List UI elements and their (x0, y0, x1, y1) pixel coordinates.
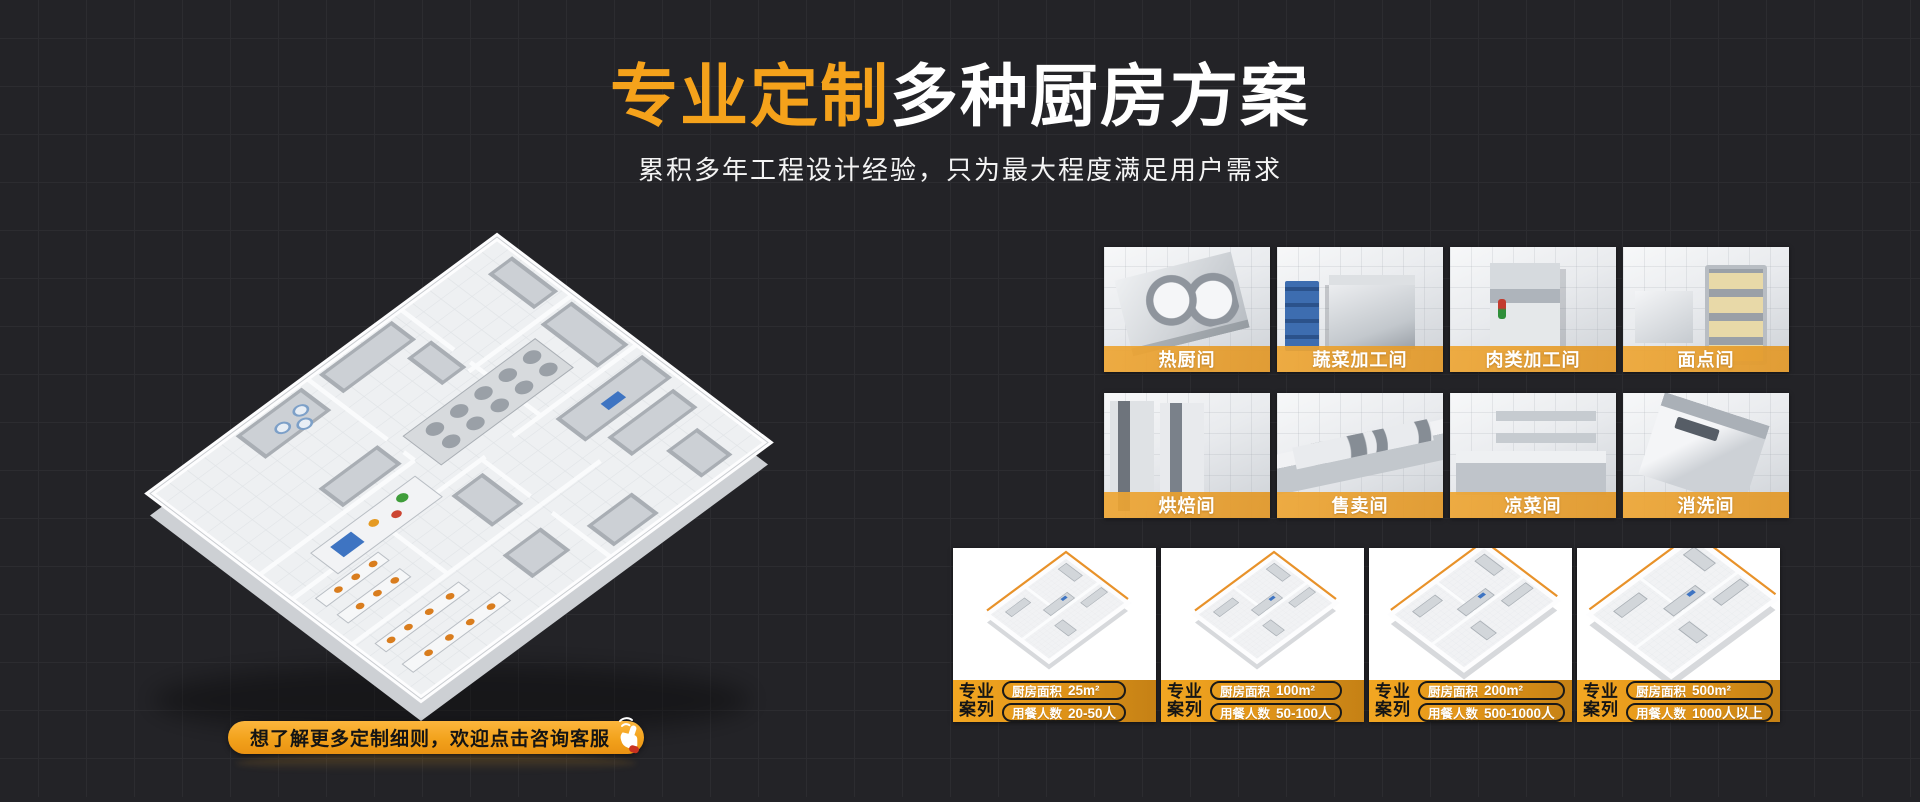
room-tile-pastry: 面点间 (1623, 247, 1789, 372)
case-card-500m2: 专业 案列 厨房面积500m² 用餐人数1000人以上 (1577, 548, 1780, 722)
case-diners-label: 用餐人数 (1428, 703, 1478, 722)
title-rest: 多种厨房方案 (890, 59, 1310, 135)
case-info-bar: 专业 案列 厨房面积500m² 用餐人数1000人以上 (1577, 680, 1780, 722)
room-tile-vegetable-processing: 蔬菜加工间 (1277, 247, 1443, 372)
case-diners-value: 20-50人 (1068, 702, 1116, 722)
case-info-bar: 专业 案列 厨房面积25m² 用餐人数20-50人 (953, 680, 1156, 722)
case-card-100m2: 专业 案列 厨房面积100m² 用餐人数50-100人 (1161, 548, 1364, 722)
case-area-value: 25m² (1068, 683, 1100, 698)
room-tile-dishwashing: 消洗间 (1623, 393, 1789, 518)
room-label: 肉类加工间 (1450, 346, 1616, 372)
case-area-label: 厨房面积 (1428, 681, 1478, 700)
case-badge-line2: 案列 (1583, 701, 1619, 719)
case-diners-pill: 用餐人数50-100人 (1210, 703, 1342, 722)
room-tile-meat-processing: 肉类加工间 (1450, 247, 1616, 372)
case-badge-line1: 专业 (1375, 683, 1411, 701)
case-area-label: 厨房面积 (1012, 681, 1062, 700)
room-label: 烘焙间 (1104, 492, 1270, 518)
room-label: 热厨间 (1104, 346, 1270, 372)
case-badge-line2: 案列 (1375, 701, 1411, 719)
case-card-25m2: 专业 案列 厨房面积25m² 用餐人数20-50人 (953, 548, 1156, 722)
promo-banner: 专业定制多种厨房方案 累积多年工程设计经验，只为最大程度满足用户需求 (0, 0, 1920, 797)
case-card-200m2: 专业 案列 厨房面积200m² 用餐人数500-1000人 (1369, 548, 1572, 722)
room-type-grid: 热厨间 蔬菜加工间 肉类加工间 面点间 烘焙间 售卖间 凉菜间 消洗间 (1104, 247, 1789, 518)
room-label: 面点间 (1623, 346, 1789, 372)
case-card-row: 专业 案列 厨房面积25m² 用餐人数20-50人 专业 案列 厨房面积100m… (953, 548, 1780, 722)
case-badge-line1: 专业 (1583, 683, 1619, 701)
case-diners-pill: 用餐人数20-50人 (1002, 703, 1126, 722)
case-area-pill: 厨房面积200m² (1418, 681, 1565, 700)
case-info-bar: 专业 案列 厨房面积200m² 用餐人数500-1000人 (1369, 680, 1572, 722)
room-label: 蔬菜加工间 (1277, 346, 1443, 372)
case-badge-line2: 案列 (959, 701, 995, 719)
case-specs: 厨房面积25m² 用餐人数20-50人 (1002, 681, 1126, 722)
page-subtitle: 累积多年工程设计经验，只为最大程度满足用户需求 (0, 150, 1920, 187)
page-title: 专业定制多种厨房方案 (0, 58, 1920, 136)
case-render (953, 548, 1156, 680)
room-tile-baking: 烘焙间 (1104, 393, 1270, 518)
case-area-pill: 厨房面积100m² (1210, 681, 1342, 700)
case-area-label: 厨房面积 (1636, 681, 1686, 700)
case-diners-value: 1000人以上 (1692, 702, 1763, 722)
case-badge-line2: 案列 (1167, 701, 1203, 719)
case-area-label: 厨房面积 (1220, 681, 1270, 700)
case-specs: 厨房面积500m² 用餐人数1000人以上 (1626, 681, 1773, 722)
case-badge: 专业 案列 (1167, 683, 1203, 719)
title-highlight: 专业定制 (610, 59, 890, 135)
case-specs: 厨房面积100m² 用餐人数50-100人 (1210, 681, 1342, 722)
case-diners-label: 用餐人数 (1220, 703, 1270, 722)
consult-cta-label: 想了解更多定制细则，欢迎点击咨询客服 (250, 724, 610, 751)
hand-click-icon (606, 711, 650, 755)
case-area-value: 500m² (1692, 683, 1731, 698)
room-label: 售卖间 (1277, 492, 1443, 518)
heading-block: 专业定制多种厨房方案 累积多年工程设计经验，只为最大程度满足用户需求 (0, 58, 1920, 187)
room-label: 消洗间 (1623, 492, 1789, 518)
case-badge: 专业 案列 (1375, 683, 1411, 719)
case-badge-line1: 专业 (1167, 683, 1203, 701)
case-render (1369, 548, 1572, 680)
case-badge: 专业 案列 (1583, 683, 1619, 719)
room-tile-cold-dish: 凉菜间 (1450, 393, 1616, 518)
case-diners-value: 50-100人 (1276, 702, 1332, 722)
case-diners-pill: 用餐人数1000人以上 (1626, 703, 1773, 722)
case-badge: 专业 案列 (959, 683, 995, 719)
case-specs: 厨房面积200m² 用餐人数500-1000人 (1418, 681, 1565, 722)
case-badge-line1: 专业 (959, 683, 995, 701)
room-tile-serving: 售卖间 (1277, 393, 1443, 518)
case-diners-value: 500-1000人 (1484, 702, 1555, 722)
case-diners-label: 用餐人数 (1636, 703, 1686, 722)
case-render (1161, 548, 1364, 680)
room-label: 凉菜间 (1450, 492, 1616, 518)
case-info-bar: 专业 案列 厨房面积100m² 用餐人数50-100人 (1161, 680, 1364, 722)
case-diners-label: 用餐人数 (1012, 703, 1062, 722)
case-area-value: 200m² (1484, 683, 1523, 698)
case-area-pill: 厨房面积25m² (1002, 681, 1126, 700)
consult-cta-button[interactable]: 想了解更多定制细则，欢迎点击咨询客服 (228, 721, 644, 754)
case-render (1577, 548, 1780, 680)
case-diners-pill: 用餐人数500-1000人 (1418, 703, 1565, 722)
room-tile-hot-kitchen: 热厨间 (1104, 247, 1270, 372)
case-area-value: 100m² (1276, 683, 1315, 698)
case-area-pill: 厨房面积500m² (1626, 681, 1773, 700)
